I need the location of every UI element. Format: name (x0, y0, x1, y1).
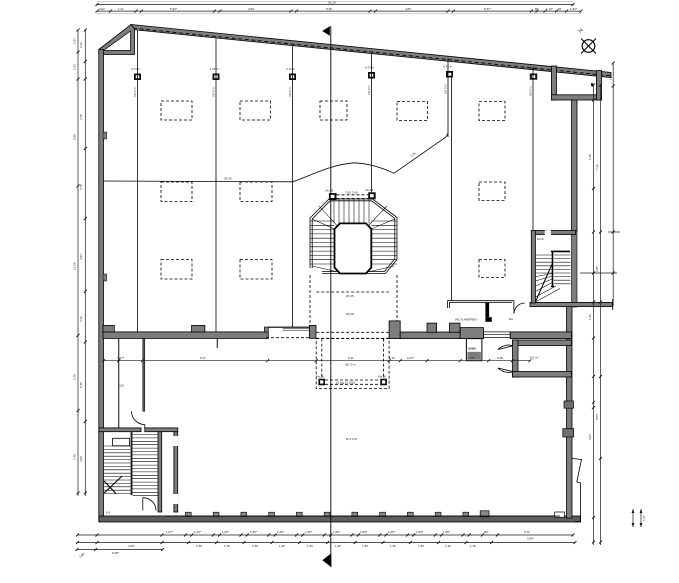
svg-text:46,72 m: 46,72 m (345, 363, 356, 367)
svg-text:5,30*: 5,30* (170, 7, 178, 11)
svg-text:1,05*: 1,05* (277, 530, 285, 534)
svg-text:1,05*: 1,05* (305, 530, 313, 534)
svg-text:4,46*: 4,46* (128, 544, 136, 548)
svg-text:14x18: 14x18 (365, 188, 374, 192)
svg-text:25,08: 25,08 (346, 312, 354, 316)
svg-text:MW 24,5: MW 24,5 (530, 86, 533, 96)
svg-text:1,36: 1,36 (279, 544, 285, 548)
svg-text:13,48: 13,48 (73, 262, 77, 270)
svg-text:6,38*: 6,38* (112, 551, 120, 555)
svg-text:MW 24,5: MW 24,5 (289, 87, 292, 97)
svg-text:7,65 7,69: 7,65 7,69 (345, 191, 358, 195)
svg-text:1,41: 1,41 (118, 7, 124, 11)
svg-text:1,05*: 1,05* (194, 530, 202, 534)
svg-text:6x16: 6x16 (537, 237, 544, 241)
svg-text:2,26: 2,26 (79, 42, 83, 48)
svg-text:8,55: 8,55 (595, 414, 599, 420)
svg-text:1,36: 1,36 (445, 544, 451, 548)
svg-text:80: 80 (535, 7, 539, 11)
svg-text:WC-D HERREN: WC-D HERREN (455, 318, 477, 322)
svg-text:26,05: 26,05 (346, 294, 354, 298)
svg-text:1,05*: 1,05* (416, 530, 424, 534)
svg-text:5,38: 5,38 (497, 356, 503, 360)
svg-text:1,05*: 1,05* (388, 530, 396, 534)
svg-text:1,05*: 1,05* (333, 530, 341, 534)
svg-text:1,07*: 1,07* (166, 530, 174, 534)
svg-text:5,40: 5,40 (79, 382, 83, 388)
svg-text:1,63*: 1,63* (570, 7, 578, 11)
svg-text:14x18: 14x18 (325, 189, 334, 193)
svg-text:1,66: 1,66 (588, 314, 592, 320)
svg-text:2,43: 2,43 (73, 64, 77, 70)
svg-text:5,4: 5,4 (106, 511, 111, 515)
svg-text:MW 24,5: MW 24,5 (213, 87, 216, 97)
svg-text:1,36: 1,36 (224, 544, 230, 548)
svg-text:1,36: 1,36 (196, 544, 202, 548)
svg-text:1,36: 1,36 (307, 544, 313, 548)
svg-text:3,50*: 3,50* (527, 537, 535, 541)
svg-text:2,07*: 2,07* (407, 356, 415, 360)
svg-text:14x18: 14x18 (378, 375, 387, 379)
svg-text:4,73 m: 4,73 m (365, 66, 375, 70)
svg-text:MW 24,5: MW 24,5 (134, 87, 137, 97)
svg-text:4,99: 4,99 (248, 7, 254, 11)
svg-text:1,36: 1,36 (335, 544, 341, 548)
svg-text:3,07*: 3,07* (117, 356, 125, 360)
svg-text:6,45: 6,45 (588, 154, 592, 160)
svg-text:7,33: 7,33 (595, 164, 599, 170)
svg-text:95: 95 (558, 7, 562, 11)
svg-text:1,36: 1,36 (362, 544, 368, 548)
svg-text:4,70: 4,70 (79, 114, 83, 120)
svg-text:1,36: 1,36 (418, 544, 424, 548)
svg-text:7,45: 7,45 (73, 454, 77, 460)
svg-text:3,70: 3,70 (524, 530, 530, 534)
svg-text:1,36: 1,36 (252, 544, 258, 548)
svg-text:1,10*: 1,10* (546, 7, 554, 11)
svg-text:5,11: 5,11 (348, 356, 354, 360)
svg-text:3,55: 3,55 (595, 266, 599, 272)
svg-text:1,87: 1,87 (73, 38, 77, 44)
svg-text:1,78: 1,78 (468, 356, 474, 360)
svg-text:8,5 m²: 8,5 m² (530, 356, 539, 360)
svg-text:1,36: 1,36 (390, 544, 396, 548)
svg-text:1,50: 1,50 (609, 74, 613, 80)
svg-text:1,05*: 1,05* (222, 530, 230, 534)
svg-text:1,05*: 1,05* (360, 530, 368, 534)
svg-text:B5/B6: B5/B6 (469, 347, 477, 351)
svg-text:4,73 m: 4,73 m (527, 67, 537, 71)
svg-text:4,86: 4,86 (79, 456, 83, 462)
svg-text:4,73 m: 4,73 m (286, 67, 296, 71)
svg-text:1,18: 1,18 (470, 544, 476, 548)
svg-text:16 stg 17,6/28: 16 stg 17,6/28 (336, 381, 355, 385)
svg-text:4,73 m: 4,73 m (131, 67, 141, 71)
svg-text:5,38: 5,38 (326, 7, 332, 11)
svg-text:3,02: 3,02 (99, 7, 105, 11)
svg-text:1,26: 1,26 (642, 515, 646, 521)
svg-text:6,97: 6,97 (588, 434, 592, 440)
svg-text:6,78: 6,78 (73, 374, 77, 380)
svg-text:36,35: 36,35 (224, 177, 232, 181)
svg-text:1,05*: 1,05* (250, 530, 258, 534)
svg-text:4,93: 4,93 (79, 254, 83, 260)
svg-text:4,83: 4,83 (405, 7, 411, 11)
svg-text:M 1:170: M 1:170 (346, 437, 357, 441)
svg-text:MW 24,5: MW 24,5 (445, 84, 448, 94)
svg-text:5,67*: 5,67* (484, 7, 492, 11)
svg-text:DA: DA (509, 317, 513, 321)
svg-text:4,05: 4,05 (118, 384, 124, 388)
svg-text:8,98: 8,98 (73, 134, 77, 140)
svg-text:14x18: 14x18 (316, 375, 325, 379)
svg-text:1,16: 1,16 (389, 356, 395, 360)
svg-text:1,05*: 1,05* (443, 530, 451, 534)
svg-text:3,42: 3,42 (79, 316, 83, 322)
svg-text:36,19: 36,19 (328, 1, 336, 5)
svg-text:9,71: 9,71 (200, 356, 206, 360)
svg-text:MW 24,5: MW 24,5 (368, 85, 371, 95)
svg-text:4,75: 4,75 (79, 184, 83, 190)
svg-text:4,73 m: 4,73 m (210, 67, 220, 71)
